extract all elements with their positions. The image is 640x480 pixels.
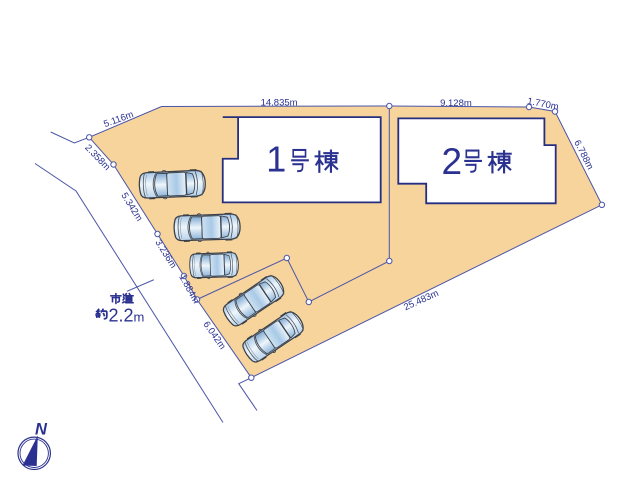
svg-text:N: N bbox=[35, 421, 48, 439]
svg-text:1: 1 bbox=[266, 139, 286, 180]
svg-text:9.128m: 9.128m bbox=[440, 98, 472, 109]
svg-text:2: 2 bbox=[442, 141, 463, 182]
svg-text:14.835m: 14.835m bbox=[261, 98, 298, 109]
svg-text:2.2m: 2.2m bbox=[109, 306, 145, 326]
